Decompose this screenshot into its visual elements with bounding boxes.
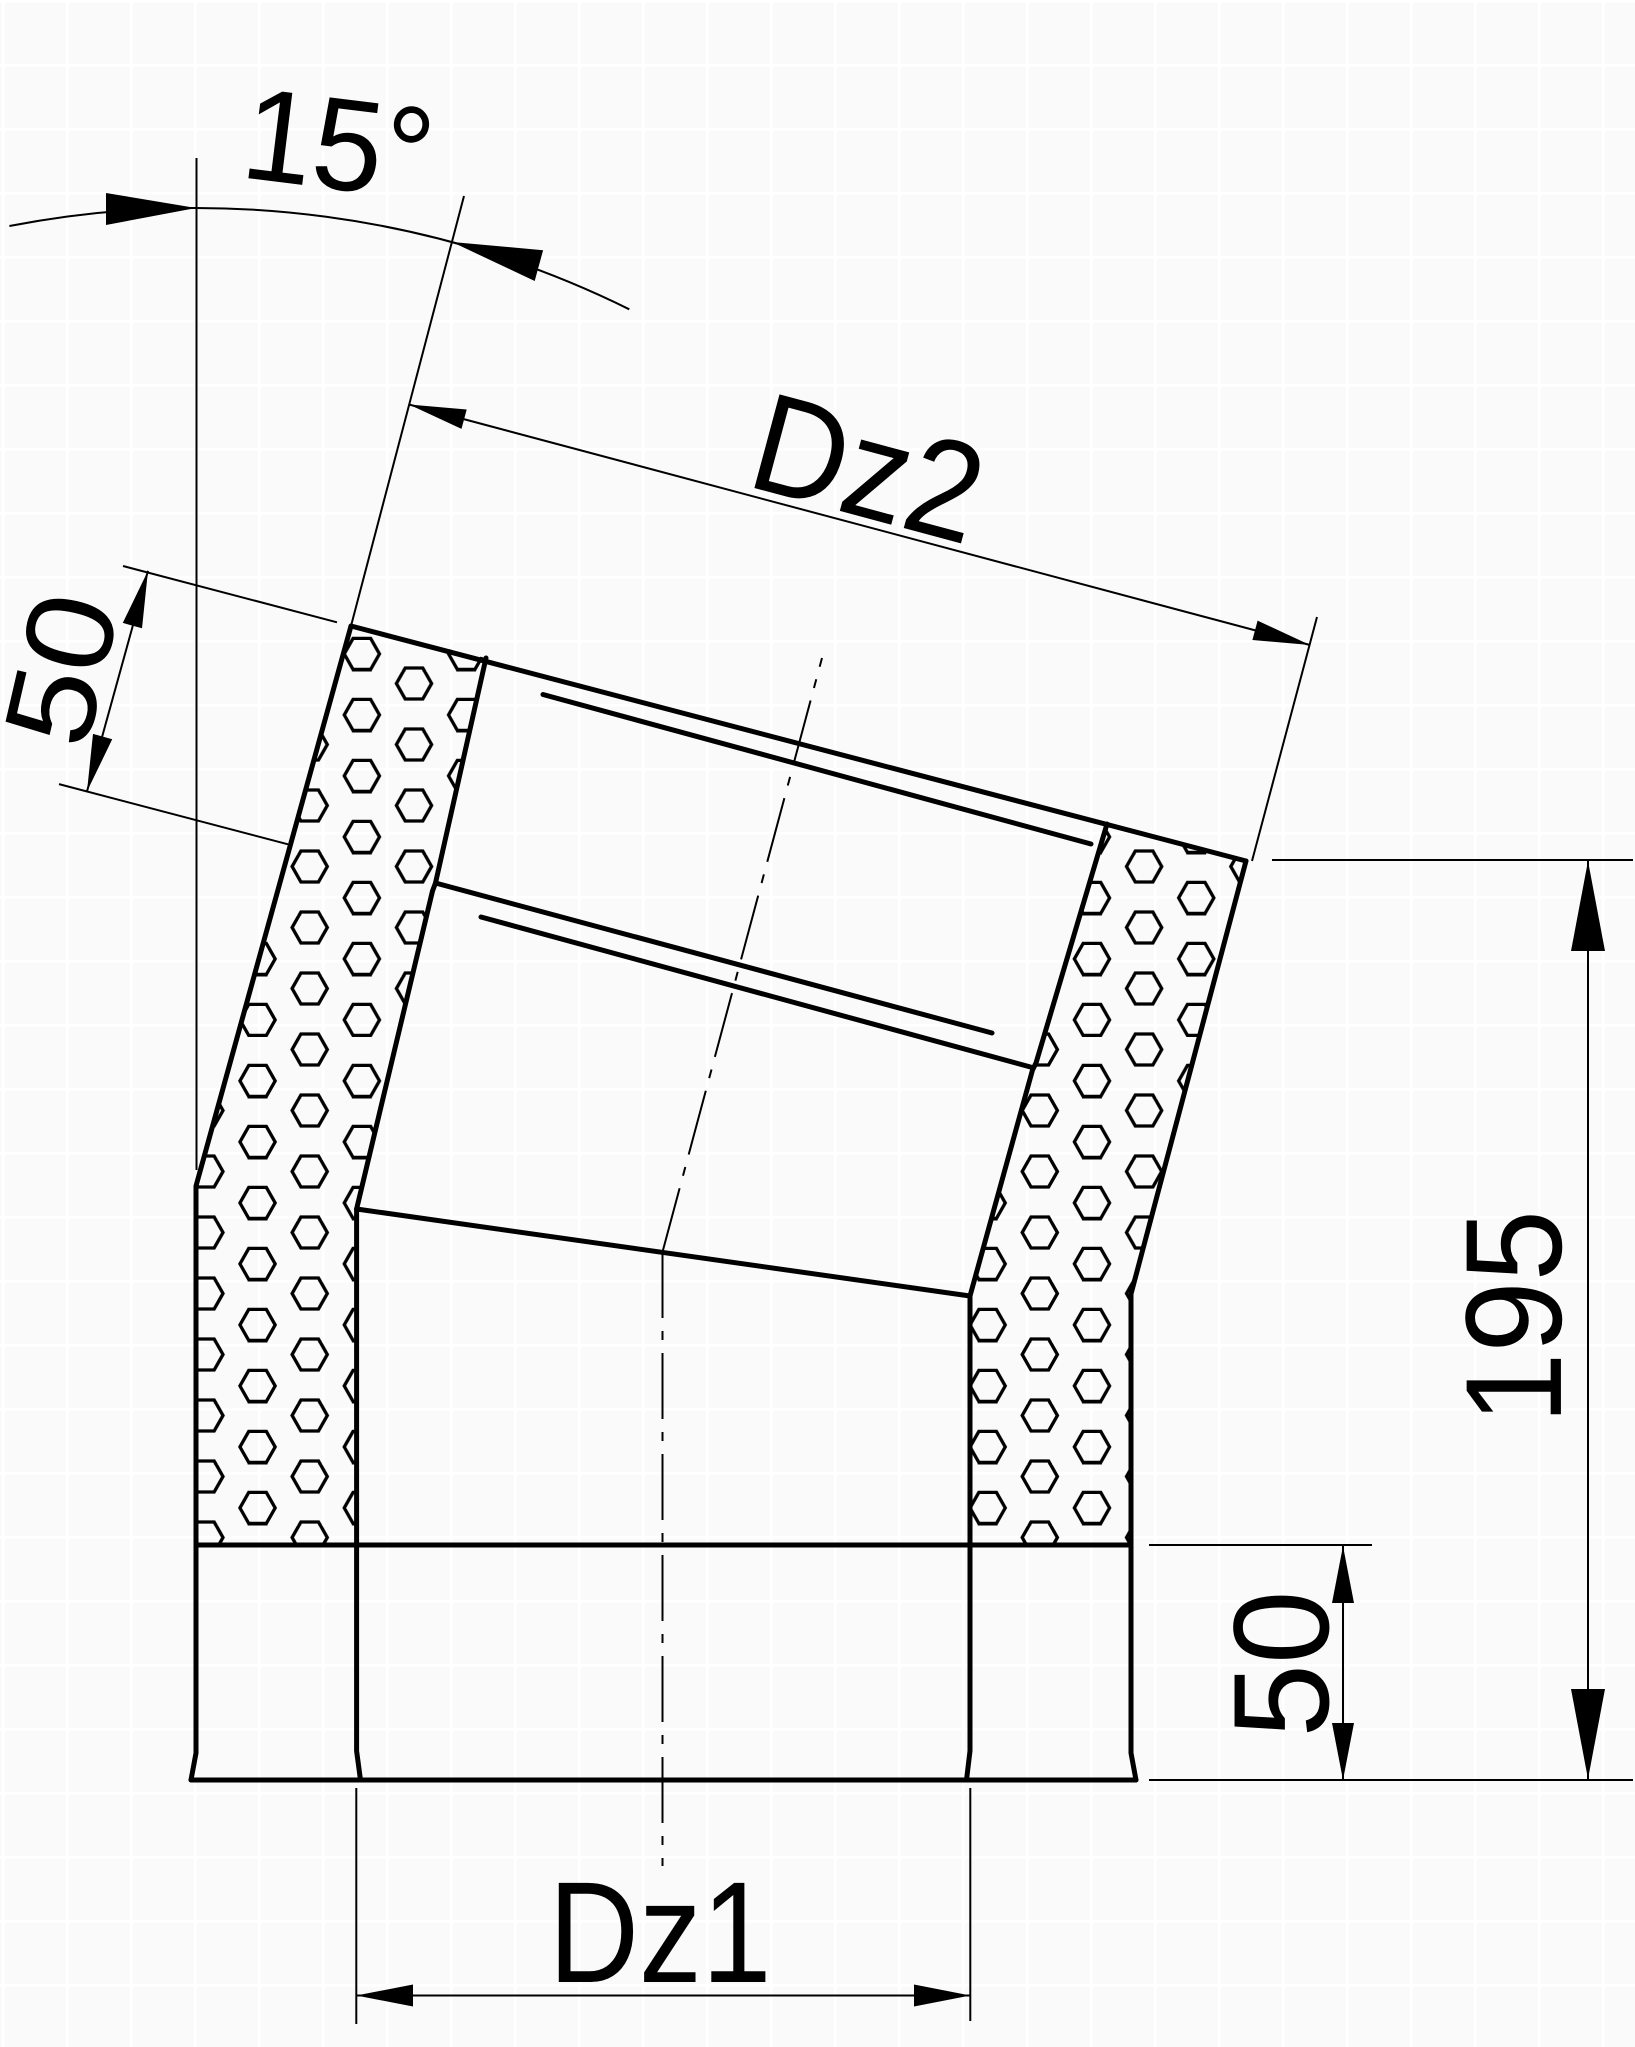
svg-text:195: 195: [1438, 1210, 1591, 1424]
svg-text:Dz1: Dz1: [549, 1852, 772, 2013]
svg-text:50: 50: [1205, 1591, 1357, 1738]
svg-text:15°: 15°: [236, 59, 442, 228]
